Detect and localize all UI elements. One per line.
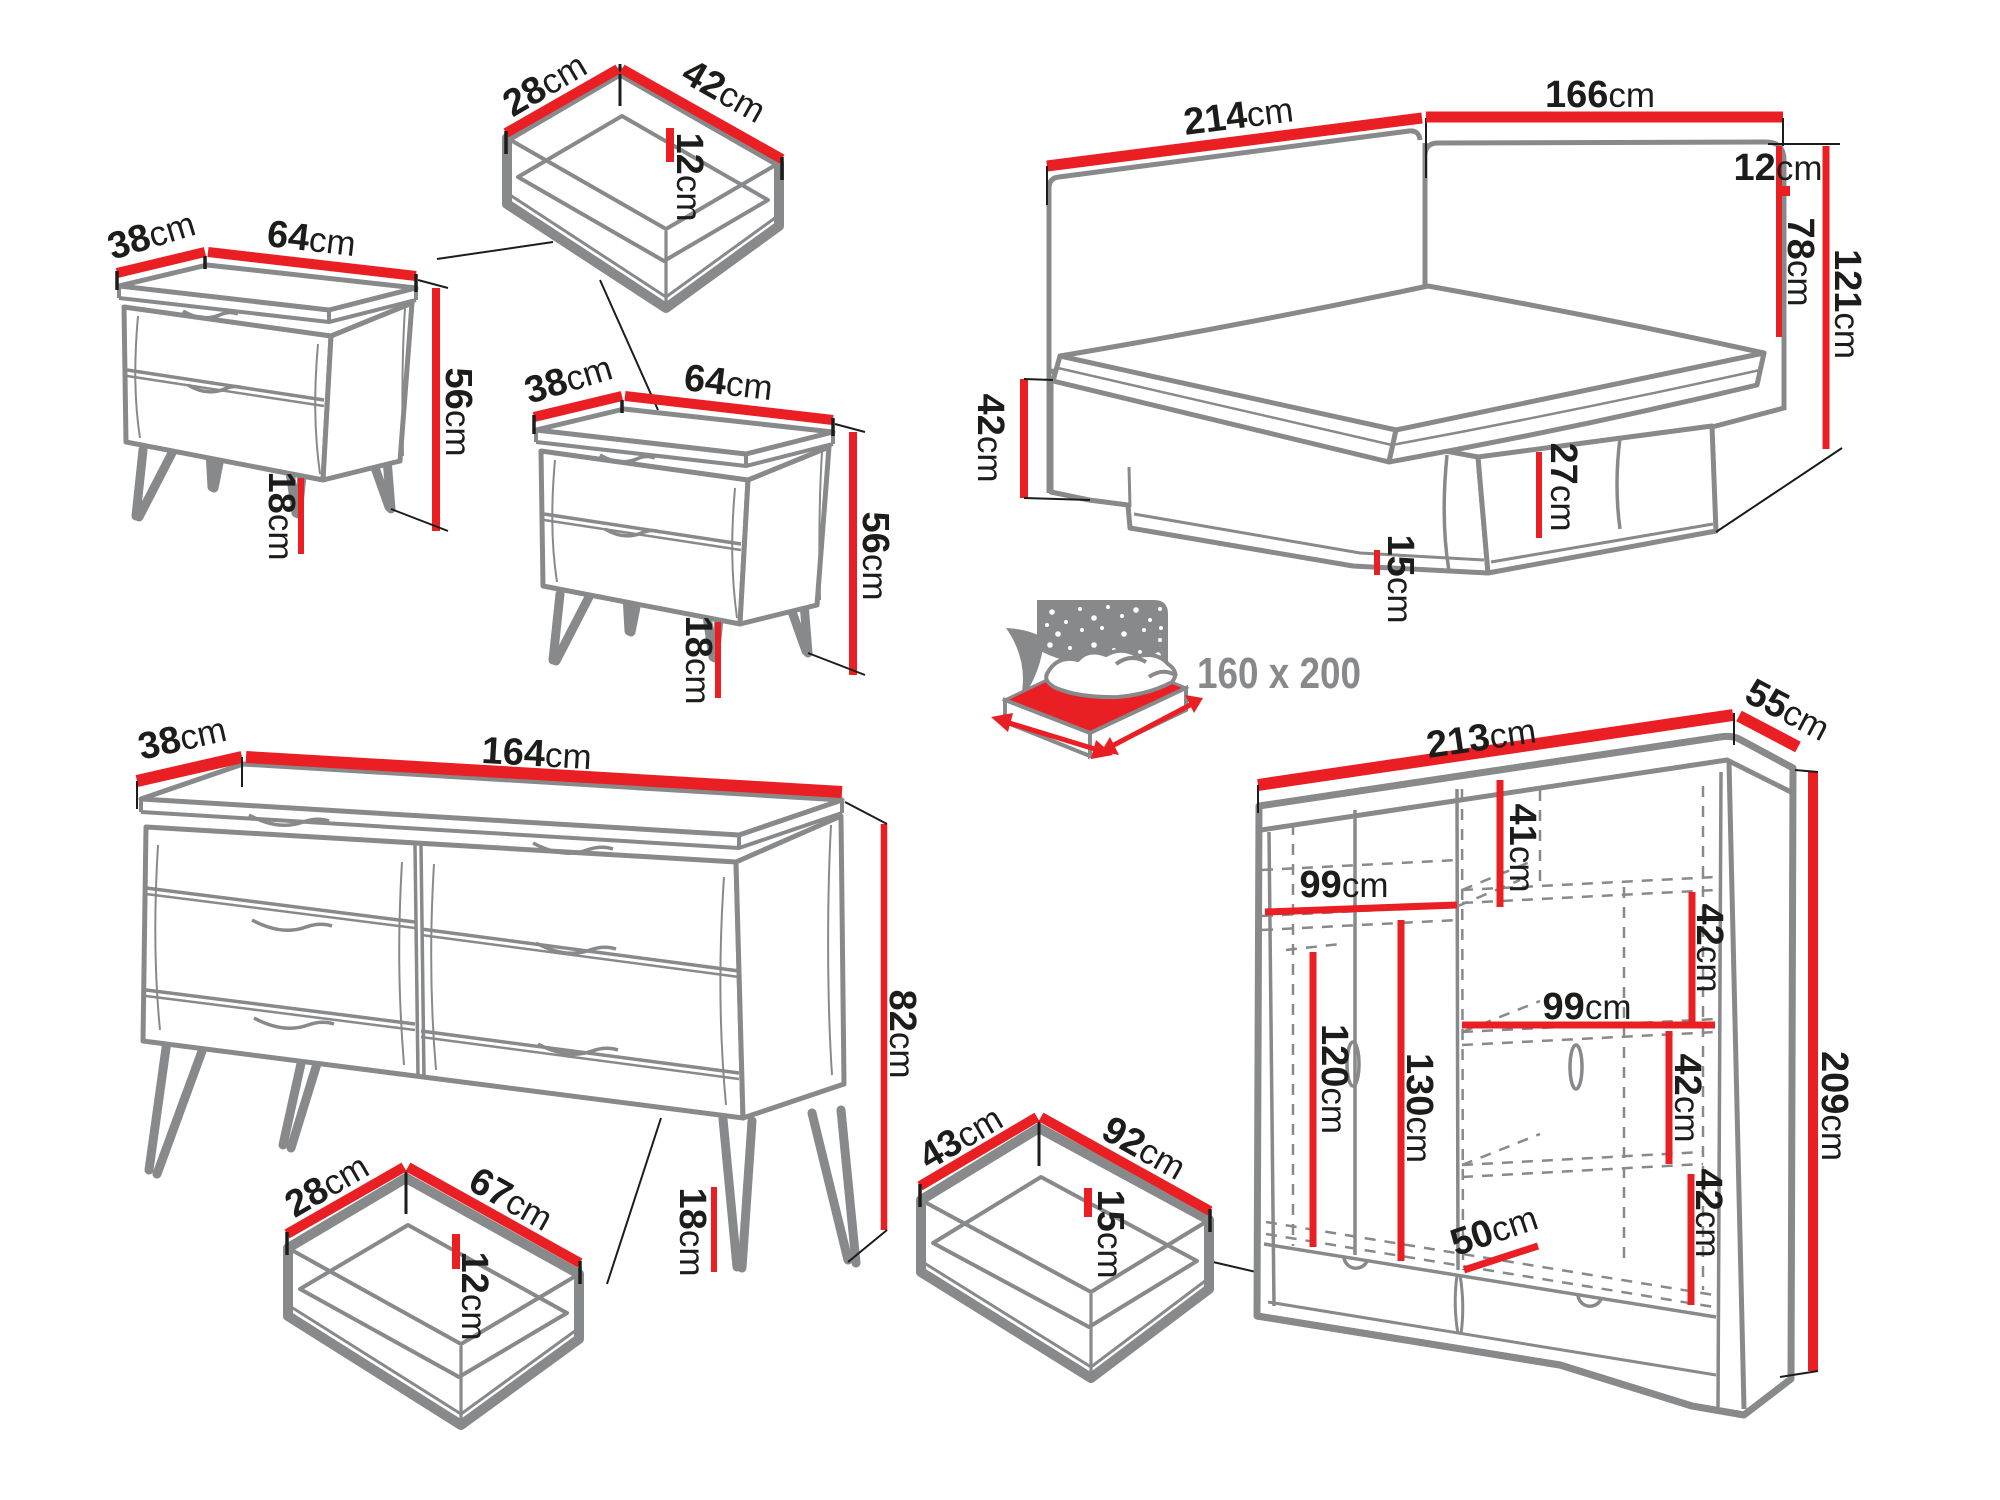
svg-text:18cm: 18cm xyxy=(677,616,719,705)
svg-text:27cm: 27cm xyxy=(1542,443,1584,532)
svg-text:41cm: 41cm xyxy=(1501,804,1543,893)
svg-text:120cm: 120cm xyxy=(1313,1024,1355,1134)
svg-text:78cm: 78cm xyxy=(1779,218,1821,307)
svg-text:15cm: 15cm xyxy=(1379,535,1421,624)
svg-text:12cm: 12cm xyxy=(453,1252,495,1341)
svg-text:12cm: 12cm xyxy=(668,133,710,222)
svg-text:56cm: 56cm xyxy=(854,512,896,601)
svg-text:15cm: 15cm xyxy=(1089,1190,1131,1279)
svg-text:164cm: 164cm xyxy=(481,730,593,778)
svg-text:166cm: 166cm xyxy=(1545,74,1655,116)
svg-text:42cm: 42cm xyxy=(1687,1169,1729,1258)
svg-text:42cm: 42cm xyxy=(1688,904,1730,993)
svg-text:99cm: 99cm xyxy=(1300,864,1389,906)
svg-text:209cm: 209cm xyxy=(1813,1051,1855,1161)
svg-text:99cm: 99cm xyxy=(1543,986,1632,1028)
svg-text:42cm: 42cm xyxy=(1666,1054,1708,1143)
svg-text:18cm: 18cm xyxy=(260,472,302,561)
svg-text:160 x 200: 160 x 200 xyxy=(1197,649,1361,698)
svg-text:130cm: 130cm xyxy=(1398,1053,1440,1163)
svg-text:56cm: 56cm xyxy=(437,368,479,457)
svg-text:42cm: 42cm xyxy=(969,394,1011,483)
svg-text:82cm: 82cm xyxy=(881,990,923,1079)
svg-text:121cm: 121cm xyxy=(1826,249,1868,359)
svg-text:18cm: 18cm xyxy=(671,1188,713,1277)
svg-text:12cm: 12cm xyxy=(1734,147,1823,189)
